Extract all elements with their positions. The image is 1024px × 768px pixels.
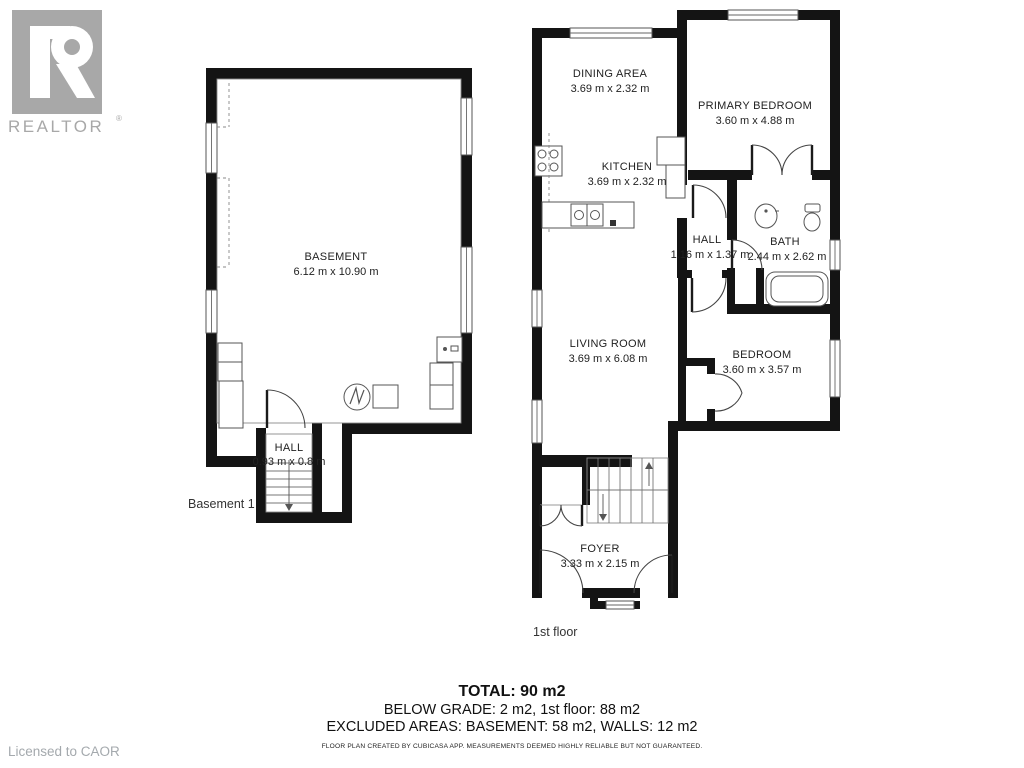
room-label-living-room: LIVING ROOM bbox=[570, 338, 647, 350]
room-dims-kitchen: 3.69 m x 2.32 m bbox=[588, 176, 667, 188]
room-dims-basement: 6.12 m x 10.90 m bbox=[294, 266, 379, 278]
room-dims-hall: 1.16 m x 1.37 m bbox=[671, 249, 750, 261]
washer-dryer-icon bbox=[430, 363, 453, 409]
room-label-primary-bedroom: PRIMARY BEDROOM bbox=[698, 100, 812, 112]
kitchen-hall-door bbox=[693, 185, 726, 218]
first-floor-window bbox=[728, 10, 798, 20]
disclaimer-text: FLOOR PLAN CREATED BY CUBICASA APP. MEAS… bbox=[322, 743, 703, 750]
foyer-side-door bbox=[634, 555, 672, 593]
room-label-basement-hall: HALL bbox=[275, 442, 304, 454]
laundry-sink-icon bbox=[437, 337, 462, 362]
bathtub-icon bbox=[766, 272, 828, 306]
bedroom-closet-doors bbox=[715, 374, 742, 411]
first-floor-stairs bbox=[587, 458, 668, 523]
basement-window bbox=[206, 123, 217, 173]
refrigerator-icon bbox=[657, 137, 685, 198]
first-floor-label: 1st floor bbox=[533, 625, 577, 639]
room-dims-bath: 2.44 m x 2.62 m bbox=[748, 251, 827, 263]
room-label-hall: HALL bbox=[693, 234, 722, 246]
room-label-dining: DINING AREA bbox=[573, 68, 648, 80]
primary-bedroom-closet-doors bbox=[752, 145, 812, 175]
water-heater-icon bbox=[344, 384, 370, 410]
first-floor-plan: DINING AREA 3.69 m x 2.32 m PRIMARY BEDR… bbox=[532, 10, 840, 639]
room-label-foyer: FOYER bbox=[580, 543, 619, 555]
registered-trademark: ® bbox=[116, 114, 122, 123]
counter-tick bbox=[610, 220, 616, 226]
basement-window bbox=[461, 247, 472, 333]
first-floor-window bbox=[532, 290, 542, 327]
stairs-up-arrow-icon bbox=[645, 462, 653, 469]
basement-box-fixture bbox=[373, 385, 398, 408]
first-floor-window bbox=[830, 240, 840, 270]
first-floor-window bbox=[830, 340, 840, 397]
entry-vestibule-window bbox=[606, 601, 634, 609]
room-dims-basement-hall: 0.93 m x 0.8 m bbox=[253, 456, 326, 468]
licensed-to-text: Licensed to CAOR bbox=[8, 744, 120, 759]
stairs-down-arrow-icon bbox=[285, 504, 293, 511]
kitchen-counter bbox=[542, 202, 634, 228]
bath-sink-icon bbox=[755, 204, 779, 228]
realtor-logo-block bbox=[12, 10, 102, 114]
floor-plan-canvas: REALTOR ® bbox=[0, 0, 1024, 768]
basement-window bbox=[206, 290, 217, 333]
bedroom-hall-door bbox=[692, 278, 726, 312]
realtor-wordmark: REALTOR bbox=[8, 117, 104, 136]
room-dims-bedroom: 3.60 m x 3.57 m bbox=[723, 364, 802, 376]
kitchen-sink-icon bbox=[571, 204, 603, 226]
first-floor-window bbox=[570, 28, 652, 38]
entry-door bbox=[540, 550, 583, 593]
first-floor-window bbox=[532, 400, 542, 443]
basement-hall-door bbox=[267, 390, 305, 428]
basement-dashed-area bbox=[217, 83, 229, 267]
room-label-kitchen: KITCHEN bbox=[602, 161, 652, 173]
floor-plan-page: REALTOR ® bbox=[0, 0, 1024, 768]
excluded-areas: EXCLUDED AREAS: BASEMENT: 58 m2, WALLS: … bbox=[327, 719, 698, 735]
room-label-bedroom: BEDROOM bbox=[733, 349, 792, 361]
room-label-basement: BASEMENT bbox=[305, 251, 368, 263]
basement-window bbox=[461, 98, 472, 155]
area-summary: TOTAL: 90 m2 BELOW GRADE: 2 m2, 1st floo… bbox=[322, 683, 703, 750]
realtor-logo: REALTOR ® bbox=[8, 10, 122, 136]
stairs-down-arrow-icon bbox=[599, 514, 607, 521]
basement-walls bbox=[206, 68, 472, 523]
room-dims-living-room: 3.69 m x 6.08 m bbox=[569, 353, 648, 365]
toilet-icon bbox=[804, 204, 820, 231]
room-dims-foyer: 3.33 m x 2.15 m bbox=[561, 558, 640, 570]
total-area: TOTAL: 90 m2 bbox=[459, 683, 566, 700]
room-dims-dining: 3.69 m x 2.32 m bbox=[571, 83, 650, 95]
room-dims-primary-bedroom: 3.60 m x 4.88 m bbox=[716, 115, 795, 127]
foyer-closet-doors bbox=[540, 505, 582, 526]
stove-icon bbox=[535, 146, 562, 176]
below-grade-area: BELOW GRADE: 2 m2, 1st floor: 88 m2 bbox=[384, 702, 640, 718]
basement-plan: BASEMENT 6.12 m x 10.90 m HALL 0.93 m x … bbox=[188, 68, 472, 523]
basement-storage-furniture bbox=[218, 343, 243, 428]
room-label-bath: BATH bbox=[770, 236, 800, 248]
basement-floor-label: Basement 1 bbox=[188, 497, 255, 511]
